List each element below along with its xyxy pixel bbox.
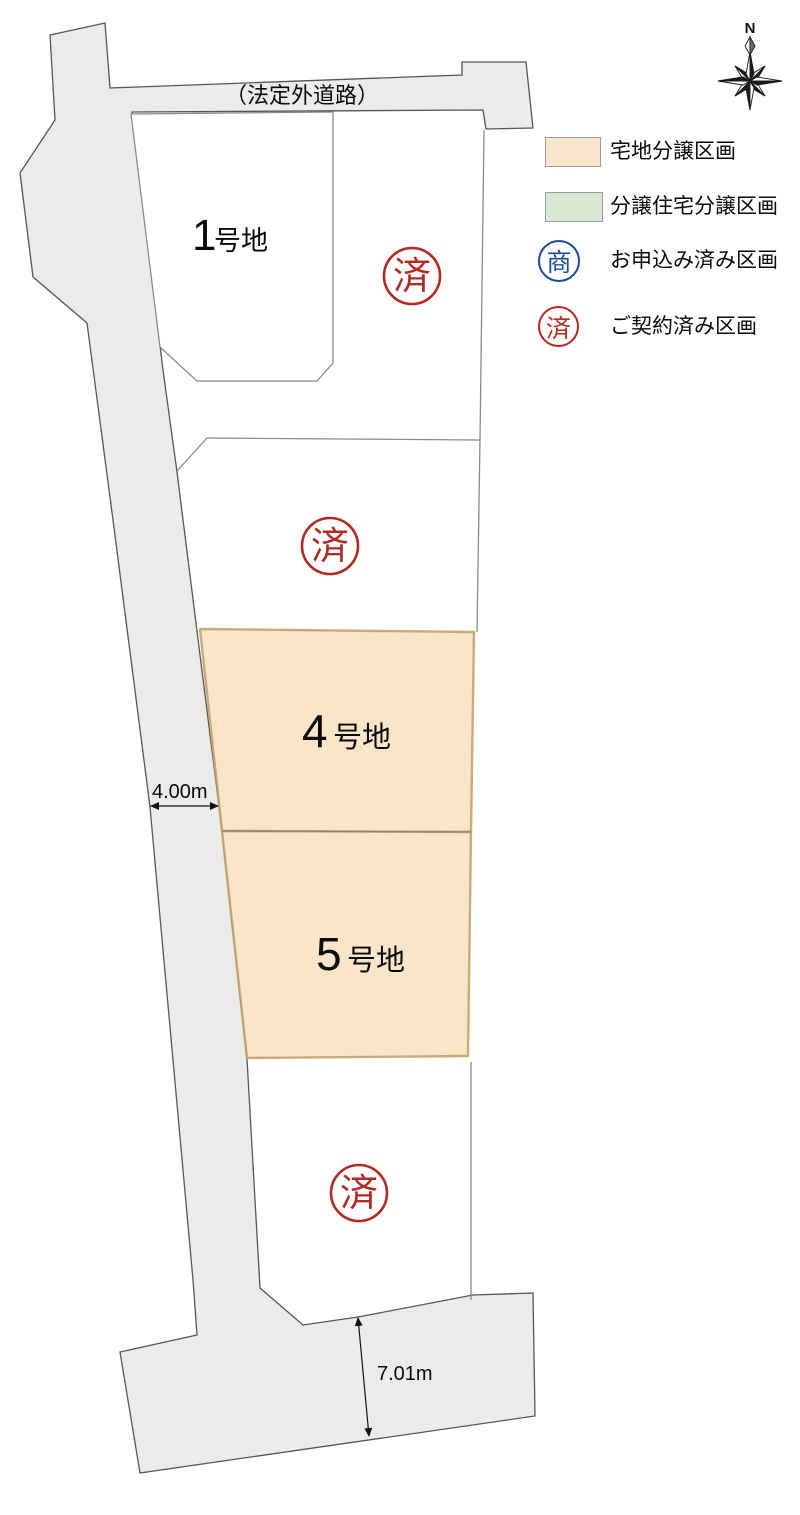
road-width-value: 4.00m <box>152 781 208 803</box>
site-plan-svg: 済 済 済 1 号地 4 号地 5 号地 （法定外道路） 4.00m <box>0 0 800 1515</box>
plot-2-top-line <box>177 438 480 471</box>
plot-1-number: 1 <box>192 211 216 260</box>
plot-4-number: 4 <box>302 705 328 757</box>
compass-needle <box>745 37 750 55</box>
frontage-value: 7.01m <box>377 1363 433 1385</box>
plot-5-suffix: 号地 <box>347 944 405 977</box>
plot-4-suffix: 号地 <box>333 721 391 754</box>
plot-1-suffix: 号地 <box>214 226 268 256</box>
legend-label-built-home: 分譲住宅分譲区画 <box>610 192 778 222</box>
sold-stamp-top: 済 <box>384 248 440 304</box>
legend-swatch-lot <box>545 137 601 167</box>
legend-sold-stamp-char: 済 <box>546 309 571 345</box>
legend-label-sold: ご契約済み区画 <box>610 306 757 347</box>
compass-north-label: N <box>745 20 756 37</box>
legend-label-applied: お申込み済み区画 <box>610 240 778 282</box>
road-name-label: （法定外道路） <box>225 83 379 108</box>
legend-label-lot: 宅地分譲区画 <box>610 137 736 167</box>
legend-sold-stamp-icon: 済 <box>538 306 579 347</box>
legend-swatch-built-home <box>545 192 603 222</box>
sold-stamp-text: 済 <box>393 256 431 298</box>
lot-subdivision-plan: 済 済 済 1 号地 4 号地 5 号地 （法定外道路） 4.00m <box>0 0 800 1515</box>
sold-stamp-text: 済 <box>311 526 349 568</box>
plot-5-number: 5 <box>316 928 342 980</box>
legend-applied-stamp-char: 商 <box>546 243 571 279</box>
sold-stamp-bottom: 済 <box>331 1165 387 1221</box>
compass-rose: N <box>718 20 782 110</box>
boundary-right-upper <box>477 130 484 632</box>
sold-stamp-text: 済 <box>340 1173 378 1215</box>
sold-stamp-middle: 済 <box>302 518 358 574</box>
legend-applied-stamp-icon: 商 <box>538 240 580 282</box>
